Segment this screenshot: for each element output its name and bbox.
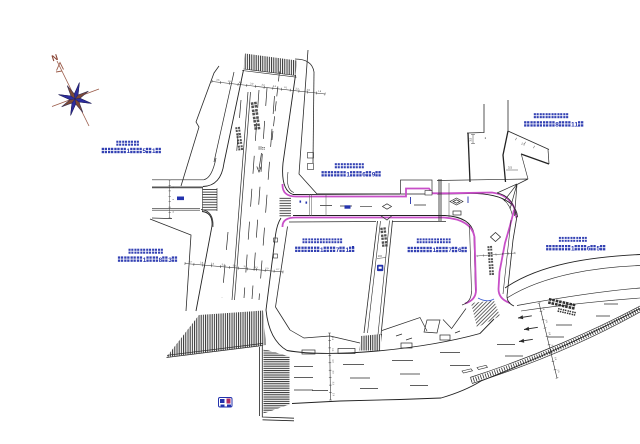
svg-text:9: 9 <box>372 172 376 179</box>
svg-text:3.5: 3.5 <box>508 166 512 170</box>
svg-text:3: 3 <box>168 257 172 264</box>
svg-text:8: 8 <box>159 257 163 264</box>
svg-text:1: 1 <box>152 148 156 155</box>
svg-text:1: 1 <box>143 257 147 264</box>
svg-text:3.5: 3.5 <box>469 137 473 141</box>
svg-text:3.0: 3.0 <box>378 254 382 258</box>
svg-text:1: 1 <box>346 172 350 179</box>
svg-text:1: 1 <box>432 247 436 254</box>
svg-text:7: 7 <box>448 247 452 254</box>
svg-text:5: 5 <box>142 148 146 155</box>
svg-text:8: 8 <box>555 122 559 129</box>
svg-text:6: 6 <box>587 245 591 252</box>
svg-text:1: 1 <box>127 148 131 155</box>
svg-text:1: 1 <box>320 247 324 254</box>
svg-text:7: 7 <box>336 247 340 254</box>
svg-text:1: 1 <box>345 247 349 254</box>
svg-text:6: 6 <box>458 247 462 254</box>
svg-text:1: 1 <box>574 122 578 129</box>
svg-text:5: 5 <box>596 245 600 252</box>
svg-text:1: 1 <box>571 245 575 252</box>
svg-text:6: 6 <box>362 172 366 179</box>
